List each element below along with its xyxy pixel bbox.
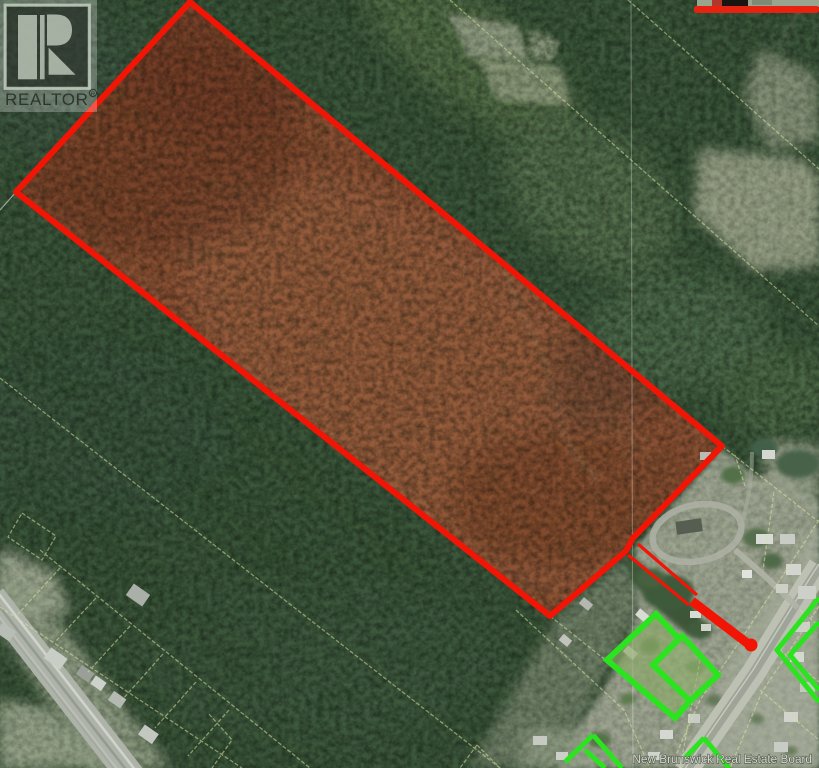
svg-text:New Brunswick Real Estate Boar: New Brunswick Real Estate Board xyxy=(632,752,812,766)
svg-text:R: R xyxy=(91,92,96,98)
svg-text:REALTOR: REALTOR xyxy=(5,90,89,109)
